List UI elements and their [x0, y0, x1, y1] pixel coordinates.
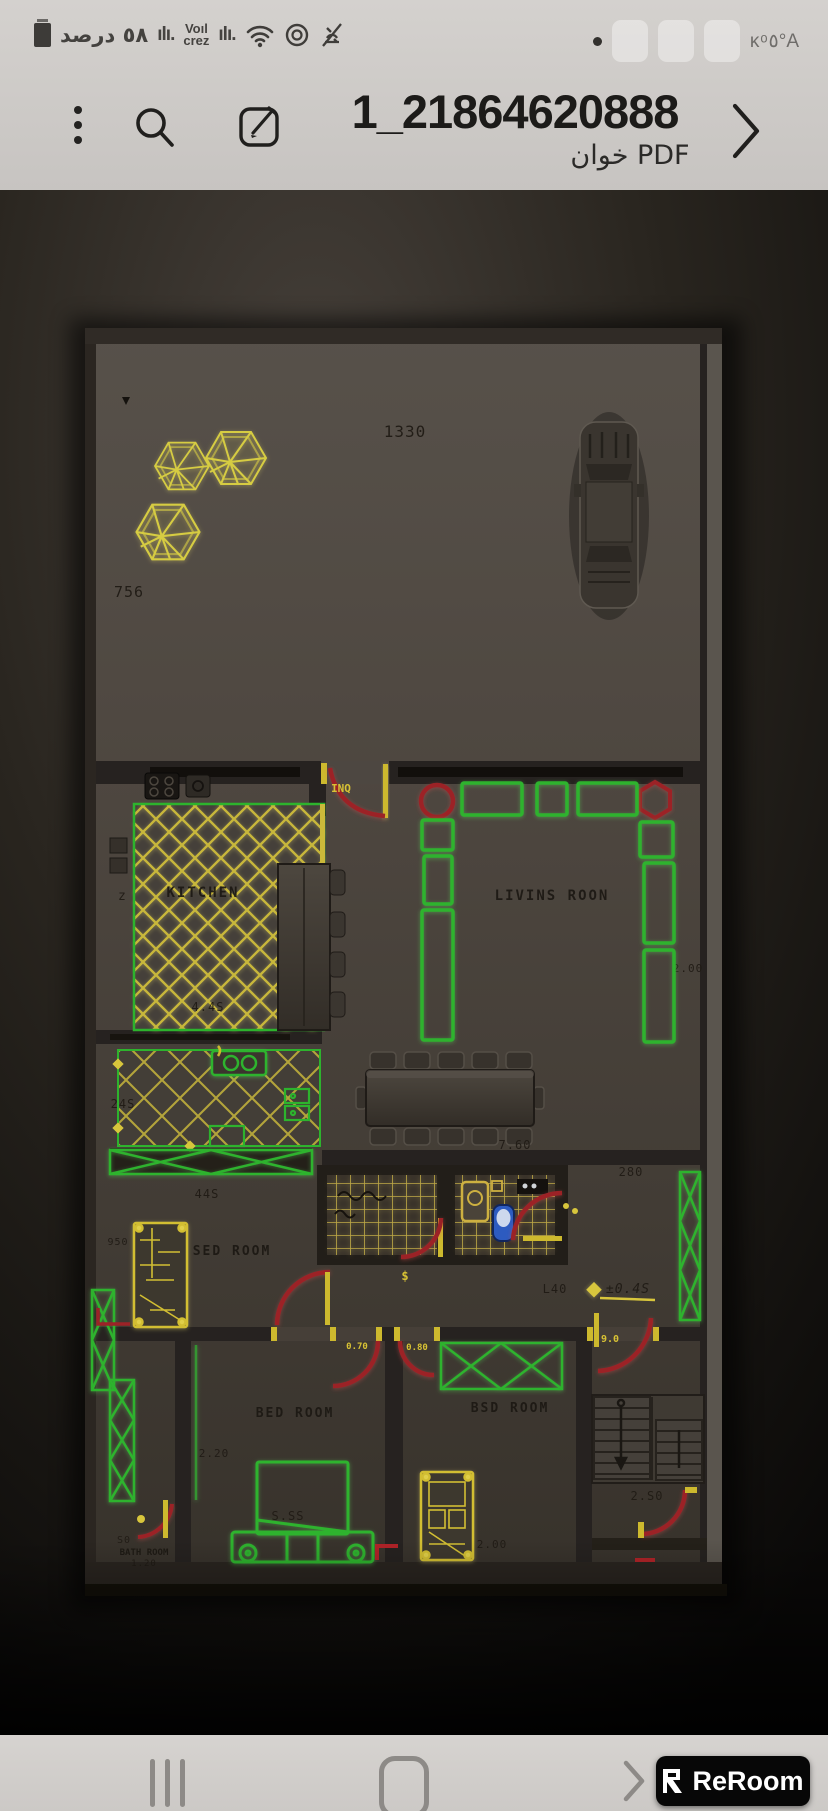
dining-table — [356, 1052, 544, 1145]
bed-dim: S.SS — [272, 1509, 305, 1523]
status-bar: ٥٨ درصد ılı. Voılcrez ılı. — [0, 16, 828, 68]
status-tile — [612, 20, 648, 62]
wall-fixture — [110, 838, 127, 853]
kitchen-mark: z — [118, 889, 127, 904]
back-button[interactable] — [620, 1757, 648, 1805]
status-right-text: ᴋᵒ٥°A — [750, 30, 800, 53]
door-dim: 9.0 — [601, 1334, 619, 1345]
courtyard-side-dim: 756 — [114, 583, 144, 601]
utility-sink-icon — [212, 1046, 266, 1075]
stairs-dim: 2.S0 — [631, 1489, 664, 1503]
door-leaf — [325, 1272, 330, 1325]
record-icon — [284, 22, 310, 48]
door-mark: $ — [401, 1269, 408, 1283]
door-leaf — [163, 1500, 168, 1538]
courtyard-dim: 1330 — [384, 422, 427, 441]
utility-dim: 24S — [111, 1097, 136, 1111]
door-leaf — [523, 1236, 562, 1241]
photo-vignette — [0, 1540, 828, 1735]
status-tile — [658, 20, 694, 62]
forward-chevron-button[interactable] — [726, 98, 766, 164]
search-button[interactable] — [132, 104, 178, 152]
signal-bars2-icon: ılı. — [218, 24, 235, 46]
alarm-off-icon — [319, 22, 345, 48]
dining-dim: 7.60 — [499, 1138, 532, 1152]
home-button[interactable] — [379, 1756, 429, 1811]
wardrobe-icon — [134, 1223, 187, 1327]
app-chrome: ٥٨ درصد ılı. Voılcrez ılı. — [0, 0, 828, 190]
pdf-page-photo[interactable]: 1330 756 — [0, 190, 828, 1735]
door-dim: 0.70 — [346, 1342, 368, 1352]
phone-screen: ٥٨ درصد ılı. Voılcrez ılı. — [0, 0, 828, 1811]
reroom-watermark-text: ReRoom — [692, 1766, 803, 1797]
entry-label: INQ — [331, 782, 351, 795]
bedroom3-label: BSD ROOM — [471, 1401, 550, 1416]
living-right-dim: 2.00 — [673, 962, 704, 975]
kitchen-label: KITCHEN — [166, 885, 239, 901]
battery-percent-text: ٥٨ درصد — [60, 23, 148, 47]
reroom-logo-icon — [662, 1768, 684, 1794]
bedroom2-dim: 2.20 — [199, 1447, 230, 1460]
utility-room: 24S — [111, 1046, 320, 1152]
signal-bars-icon: ılı. — [157, 24, 174, 46]
recents-button[interactable] — [150, 1759, 185, 1807]
android-navbar: ReRoom — [0, 1735, 828, 1811]
kitchen-dim: 4.4S — [192, 1000, 225, 1014]
reroom-watermark: ReRoom — [656, 1756, 810, 1806]
battery-icon — [34, 23, 51, 47]
bedroom1-label: SED ROOM — [193, 1244, 272, 1259]
edit-button[interactable] — [236, 100, 284, 150]
door-dim: 0.80 — [406, 1343, 428, 1353]
level-mark: ±0.4S — [606, 1282, 650, 1297]
status-tile — [704, 20, 740, 62]
corridor-top-dim: 280 — [619, 1165, 644, 1179]
overflow-menu-button[interactable] — [74, 106, 82, 144]
carrier-label: Voılcrez — [183, 23, 209, 47]
kitchen: KITCHEN 4.4S z — [110, 773, 345, 1030]
document-title: 1_21864620888 — [290, 84, 740, 139]
bedroom1-dim: 950 — [107, 1237, 128, 1248]
living-room-label: LIVINS ROON — [495, 888, 610, 904]
wifi-icon — [245, 22, 275, 48]
stove-icon — [145, 773, 179, 799]
hall-dim: 44S — [195, 1187, 220, 1201]
corridor-left-dim: L40 — [543, 1282, 568, 1296]
bedroom2-label: BED ROOM — [256, 1406, 335, 1421]
notification-dot — [593, 37, 602, 46]
car-top-view — [569, 412, 649, 620]
sink-appliance-icon — [186, 775, 210, 797]
wall-fixture — [110, 858, 127, 873]
